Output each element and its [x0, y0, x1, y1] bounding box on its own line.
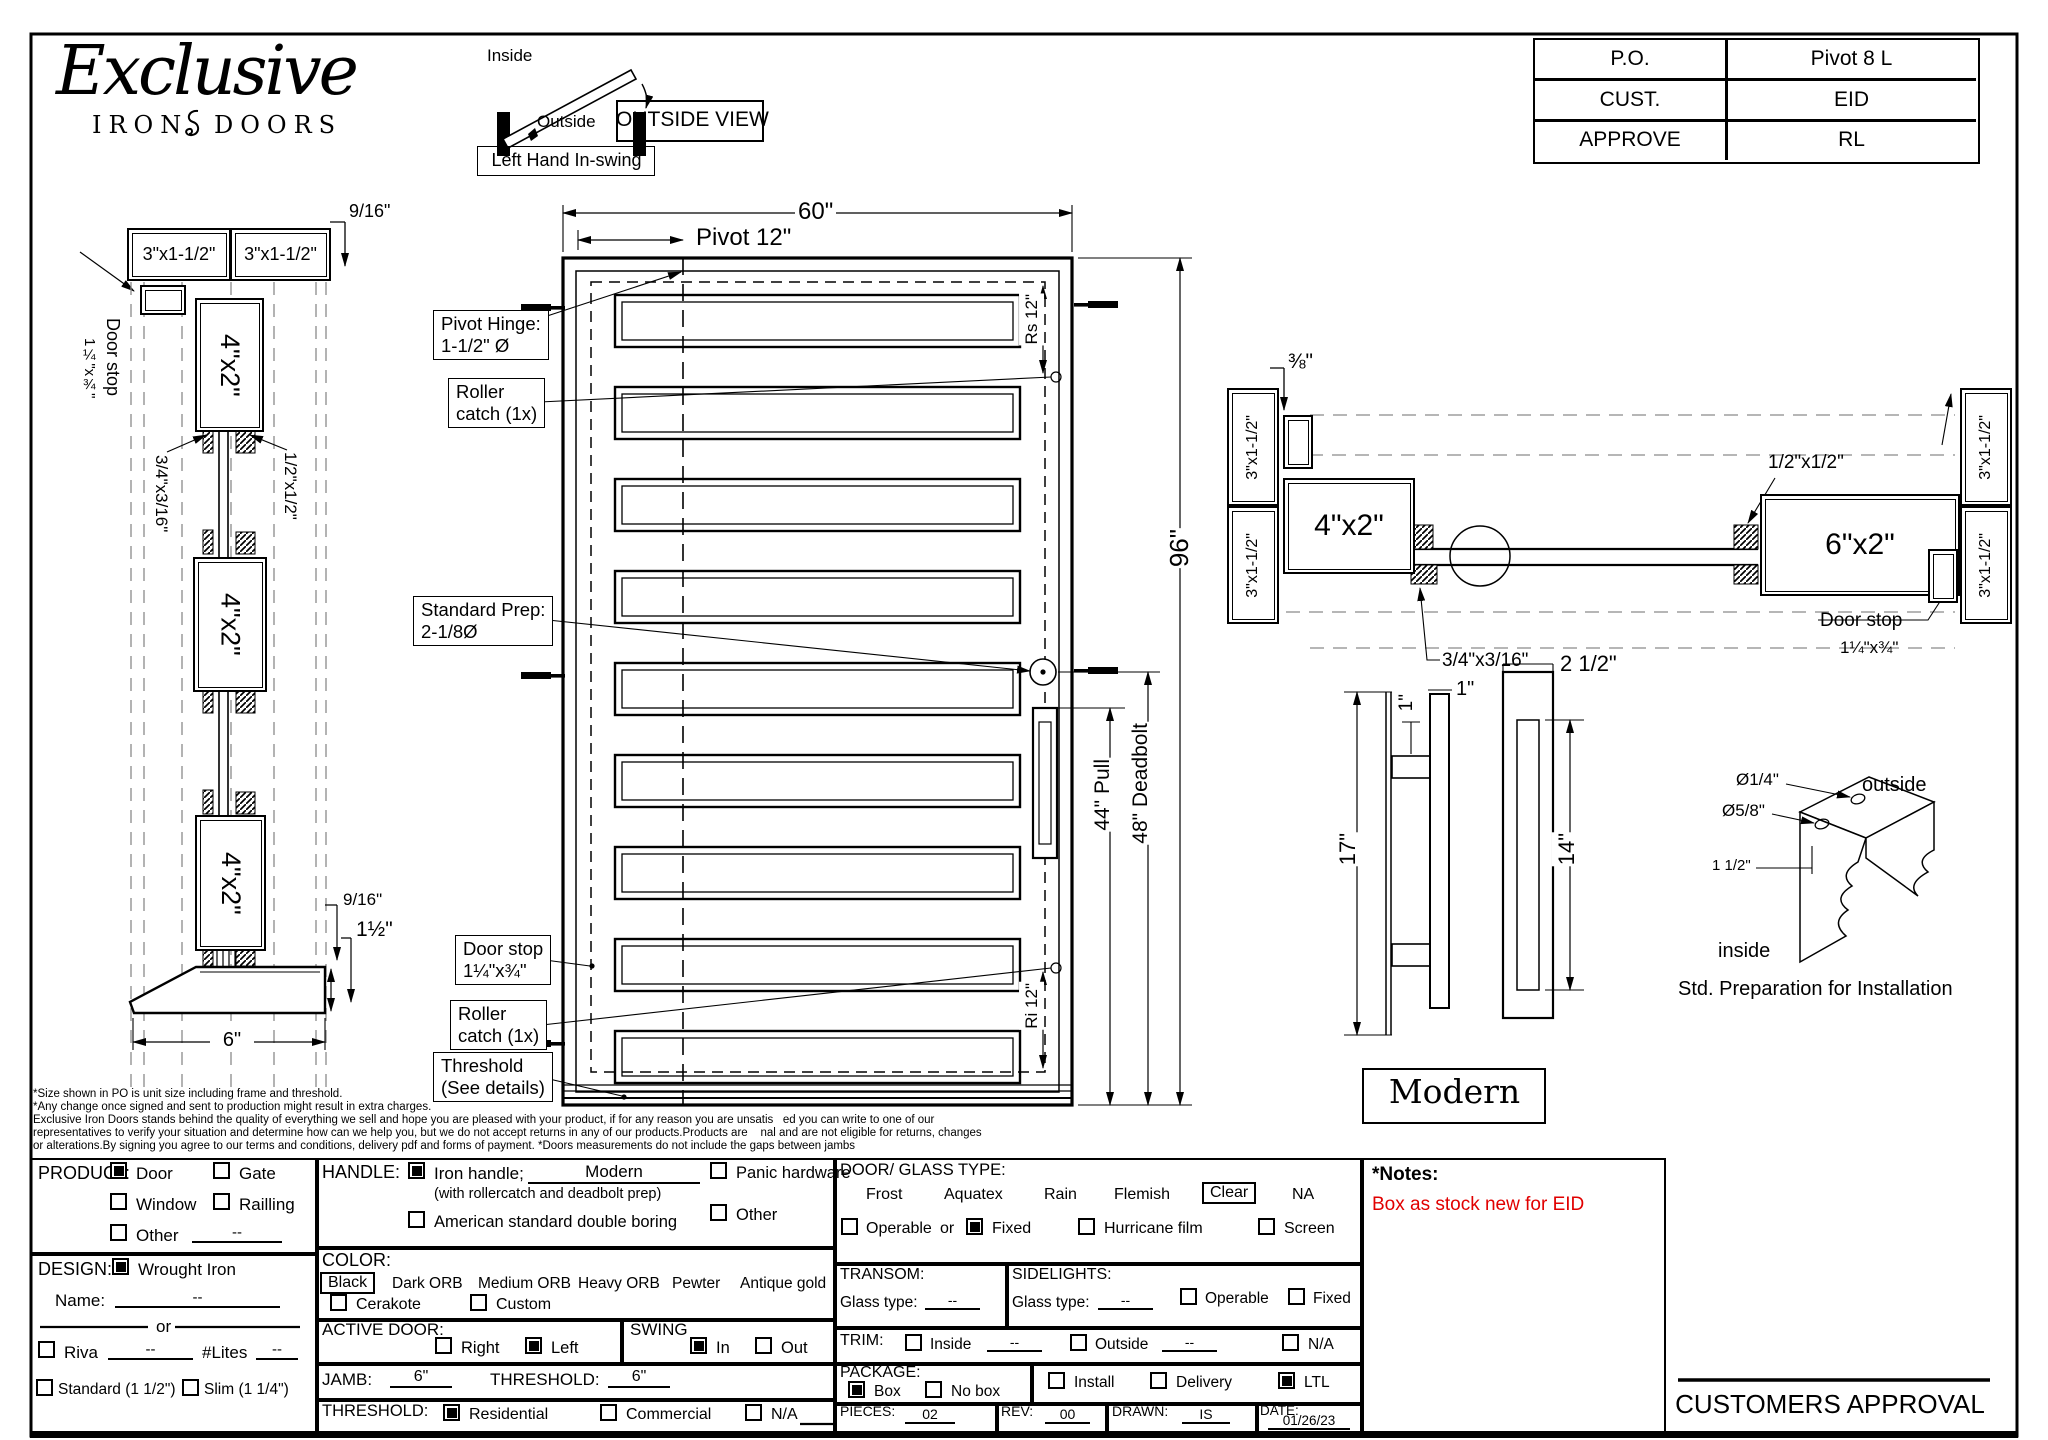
design-wrought-label: Wrought Iron — [138, 1260, 236, 1279]
threshold-residential-checkbox[interactable] — [443, 1404, 460, 1421]
package-ltl-checkbox[interactable] — [1278, 1372, 1295, 1389]
customers-approval-label: CUSTOMERS APPROVAL — [1662, 1390, 1998, 1419]
trim-na-checkbox[interactable] — [1282, 1334, 1299, 1351]
left-jamb-box-2: 3"x1-1/2" — [230, 228, 331, 281]
company-logo-script: Exclusive — [56, 34, 356, 110]
door-pull-handle — [1033, 708, 1057, 858]
door-dim-deadbolt: 48" Deadbolt — [1126, 722, 1156, 845]
left-dim-916-top: 9/16" — [349, 201, 390, 221]
jamb-value[interactable]: 6" — [390, 1368, 452, 1388]
door-dim-rs12: Rs 12" — [1019, 293, 1044, 345]
rev-label: REV: — [1001, 1404, 1033, 1420]
right-jamb-box-3: 3"x1-1/2" — [1960, 388, 2012, 506]
company-logo-sub-doors: DOORS — [214, 112, 342, 139]
title-po-key: P.O. — [1535, 47, 1725, 71]
install-inside-label: inside — [1718, 940, 1770, 962]
package-delivery-label: Delivery — [1176, 1374, 1232, 1391]
threshold-na-label: N/A — [771, 1406, 798, 1424]
door-dim-width: 60" — [795, 198, 836, 227]
threshold-dim-label: THRESHOLD: — [490, 1370, 600, 1389]
design-slim-checkbox[interactable] — [182, 1379, 199, 1396]
active-door-label: ACTIVE DOOR: — [322, 1320, 444, 1339]
callout-threshold: Threshold(See details) — [433, 1052, 553, 1102]
product-railing-checkbox[interactable] — [213, 1193, 230, 1210]
product-door-label: Door — [136, 1164, 173, 1183]
left-door-stop-label: Door stop — [103, 318, 123, 396]
handle-iron-checkbox[interactable] — [408, 1162, 425, 1179]
design-lites-label: #Lites — [202, 1343, 247, 1362]
handle-panic-checkbox[interactable] — [710, 1162, 727, 1179]
design-name-value[interactable]: -- — [115, 1289, 280, 1308]
design-label: DESIGN: — [38, 1259, 112, 1279]
disclaimer-line-4: representatives to verify your situation… — [33, 1127, 982, 1140]
left-dim-916-bottom: 9/16" — [343, 890, 382, 909]
glass-frost[interactable]: Frost — [866, 1186, 902, 1204]
threshold-residential-label: Residential — [469, 1406, 548, 1424]
title-approve-key: APPROVE — [1535, 128, 1725, 152]
sidelights-fixed-checkbox[interactable] — [1288, 1288, 1305, 1305]
swing-outside-label: Outside — [537, 112, 596, 131]
door-dim-pull: 44" Pull — [1088, 758, 1118, 832]
glass-operable-label: Operable — [866, 1220, 932, 1238]
handle-iron-label: Iron handle; — [434, 1164, 524, 1183]
bottom-rule — [30, 1431, 2018, 1438]
handle-dim-14: 14" — [1552, 832, 1583, 866]
trim-label: TRIM: — [840, 1332, 884, 1350]
design-riva-label: Riva — [64, 1343, 98, 1362]
jamb-label: JAMB: — [322, 1370, 372, 1389]
color-selected[interactable]: Black — [320, 1272, 375, 1294]
title-po-value: Pivot 8 L — [1727, 47, 1976, 71]
swing-in-label: In — [716, 1339, 730, 1357]
product-gate-label: Gate — [239, 1164, 276, 1183]
threshold-na-checkbox[interactable] — [745, 1404, 762, 1421]
active-right-checkbox[interactable] — [435, 1337, 452, 1354]
color-pewter[interactable]: Pewter — [672, 1275, 720, 1292]
install-dia-58: Ø5/8" — [1722, 801, 1765, 820]
swing-form-label: SWING — [630, 1320, 688, 1339]
handle-dim-17: 17" — [1333, 832, 1364, 866]
drawing-sheet: { "company": {"script":"Exclusive","sub1… — [0, 0, 2048, 1440]
notes-label: *Notes: — [1372, 1164, 1439, 1185]
color-label: COLOR: — [322, 1250, 391, 1270]
handle-dim-1b: 1" — [1456, 678, 1474, 700]
callout-roller-catch-top: Rollercatch (1x) — [448, 378, 545, 428]
install-dim-112: 1 1/2" — [1712, 858, 1751, 875]
pieces-value[interactable]: 02 — [905, 1406, 955, 1424]
trim-inside-label: Inside — [930, 1336, 971, 1353]
glass-hurricane-label: Hurricane film — [1104, 1220, 1203, 1238]
title-block-row-line — [1533, 78, 1976, 81]
threshold-commercial-label: Commercial — [626, 1406, 711, 1424]
design-riva-value[interactable]: -- — [108, 1341, 193, 1360]
glass-fixed-checkbox[interactable] — [966, 1218, 983, 1235]
glass-fixed-label: Fixed — [992, 1220, 1031, 1238]
glass-or-label: or — [940, 1220, 954, 1238]
transom-glass-label: Glass type: — [840, 1294, 918, 1311]
sidelights-glass-label: Glass type: — [1012, 1294, 1090, 1311]
product-door-checkbox[interactable] — [110, 1162, 127, 1179]
left-dim-6: 6" — [210, 1028, 254, 1052]
date-value[interactable]: 01/26/23 — [1268, 1413, 1350, 1430]
product-other-label: Other — [136, 1226, 179, 1245]
product-railing-label: Railling — [239, 1195, 295, 1214]
active-right-label: Right — [461, 1339, 500, 1357]
install-dia-14: Ø1/4" — [1736, 770, 1779, 789]
left-tube-box-3: 4"x2" — [195, 815, 266, 951]
door-dim-height: 96" — [1162, 528, 1197, 568]
product-gate-checkbox[interactable] — [213, 1162, 230, 1179]
install-caption: Std. Preparation for Installation — [1678, 978, 1953, 1000]
package-install-label: Install — [1074, 1374, 1115, 1391]
trim-inside-value[interactable]: -- — [987, 1334, 1042, 1352]
product-window-checkbox[interactable] — [110, 1193, 127, 1210]
color-custom-label: Custom — [496, 1296, 551, 1314]
design-standard-label: Standard (1 1/2") — [58, 1381, 176, 1398]
disclaimer-line-1: *Size shown in PO is unit size including… — [33, 1088, 342, 1101]
install-detail-lines — [1756, 777, 1934, 962]
package-box-checkbox[interactable] — [848, 1381, 865, 1398]
left-label-12x12: 1/2"x1/2" — [281, 452, 300, 520]
pivot-circle — [1450, 526, 1510, 586]
callout-door-stop: Door stop1¼"x¾" — [455, 935, 551, 985]
title-cust-value: EID — [1727, 88, 1976, 112]
right-door-stop-label: Door stop — [1820, 610, 1902, 631]
glass-label: DOOR/ GLASS TYPE: — [840, 1161, 1006, 1179]
title-block-row-line — [1533, 119, 1976, 122]
design-or-label: or — [153, 1316, 174, 1337]
trim-na-label: N/A — [1308, 1336, 1334, 1353]
install-outside-label: outside — [1862, 774, 1927, 796]
threshold-label: THRESHOLD: — [322, 1402, 428, 1420]
right-dim-38: ⅜" — [1288, 350, 1313, 374]
view-label: OUTSIDE VIEW — [616, 108, 764, 132]
color-cerakote-checkbox[interactable] — [330, 1294, 347, 1311]
package-box-label: Box — [874, 1383, 901, 1400]
right-jamb-box-2: 3"x1-1/2" — [1227, 506, 1279, 624]
color-custom-checkbox[interactable] — [470, 1294, 487, 1311]
left-door-stop-size: 1¼"x¾" — [80, 338, 97, 399]
drawn-label: DRAWN: — [1112, 1404, 1168, 1420]
logo-scroll-icon — [180, 108, 206, 144]
transom-label: TRANSOM: — [840, 1266, 924, 1284]
door-dim-ri12: Ri 12" — [1019, 982, 1044, 1030]
glass-screen-checkbox[interactable] — [1258, 1218, 1275, 1235]
left-tube-box-2: 4"x2" — [193, 557, 267, 692]
glass-rain[interactable]: Rain — [1044, 1186, 1077, 1204]
design-slim-label: Slim (1 1/4") — [204, 1381, 289, 1398]
swing-inside-label: Inside — [487, 46, 532, 65]
package-nobox-checkbox[interactable] — [925, 1381, 942, 1398]
active-left-label: Left — [551, 1339, 579, 1357]
hinge-pins — [521, 301, 1118, 1047]
package-ltl-label: LTL — [1304, 1374, 1330, 1391]
swing-out-checkbox[interactable] — [755, 1337, 772, 1354]
product-window-label: Window — [136, 1195, 196, 1214]
product-other-value[interactable]: -- — [192, 1224, 282, 1243]
right-jamb-box-4: 3"x1-1/2" — [1960, 506, 2012, 624]
threshold-profile — [130, 967, 325, 1013]
color-antique-gold[interactable]: Antique gold — [740, 1275, 826, 1292]
sidelights-fixed-label: Fixed — [1313, 1290, 1351, 1307]
right-door-stop-size: 1¼"x¾" — [1840, 638, 1898, 657]
color-heavy-orb[interactable]: Heavy ORB — [578, 1275, 660, 1292]
disclaimer-line-5: or alterations.By signing you agree to o… — [33, 1140, 855, 1153]
sidelights-glass-value[interactable]: -- — [1098, 1292, 1153, 1310]
design-riva-checkbox[interactable] — [38, 1341, 55, 1358]
handle-iron-value[interactable]: Modern — [528, 1162, 700, 1184]
title-cust-key: CUST. — [1535, 88, 1725, 112]
handle-american-checkbox[interactable] — [408, 1211, 425, 1228]
callout-standard-prep: Standard Prep:2-1/8Ø — [413, 596, 553, 646]
right-jamb-box-1: 3"x1-1/2" — [1227, 388, 1279, 506]
right-tube4-box: 4"x2" — [1283, 478, 1415, 574]
company-logo-sub-iron: IRON — [92, 112, 188, 139]
color-cerakote-label: Cerakote — [356, 1296, 421, 1314]
handle-dim-1a: 1" — [1396, 694, 1417, 711]
swing-in-checkbox[interactable] — [690, 1337, 707, 1354]
design-wrought-checkbox[interactable] — [112, 1258, 129, 1275]
swing-out-label: Out — [781, 1339, 808, 1357]
right-door-stop-box-right — [1928, 549, 1958, 603]
product-other-checkbox[interactable] — [110, 1224, 127, 1241]
glass-selected[interactable]: Clear — [1202, 1182, 1256, 1204]
sidelights-label: SIDELIGHTS: — [1012, 1266, 1112, 1284]
threshold-commercial-checkbox[interactable] — [600, 1404, 617, 1421]
right-label-12x12: 1/2"x1/2" — [1768, 452, 1844, 473]
design-name-label: Name: — [55, 1291, 105, 1310]
trim-outside-checkbox[interactable] — [1070, 1334, 1087, 1351]
glass-hurricane-checkbox[interactable] — [1078, 1218, 1095, 1235]
pieces-label: PIECES: — [840, 1404, 895, 1420]
threshold-dim-value[interactable]: 6" — [608, 1368, 670, 1388]
design-lites-value[interactable]: -- — [256, 1341, 298, 1360]
design-standard-checkbox[interactable] — [36, 1379, 53, 1396]
active-left-checkbox[interactable] — [525, 1337, 542, 1354]
title-approve-value: RL — [1727, 128, 1976, 152]
trim-outside-value[interactable]: -- — [1162, 1334, 1217, 1352]
glass-aquatex[interactable]: Aquatex — [944, 1186, 1003, 1204]
left-dim-1half: 1½" — [356, 918, 393, 942]
door-frame — [563, 258, 1072, 1105]
left-tube-box-1: 4"x2" — [195, 298, 264, 432]
handle-style-name: Modern — [1362, 1074, 1547, 1111]
handle-other-label: Other — [736, 1206, 777, 1224]
sidelights-operable-checkbox[interactable] — [1180, 1288, 1197, 1305]
rev-value[interactable]: 00 — [1045, 1406, 1090, 1424]
door-elevation-lines — [521, 205, 1192, 1105]
handle-panic-label: Panic hardware — [736, 1164, 851, 1182]
sidelights-operable-label: Operable — [1205, 1290, 1269, 1307]
glass-operable-checkbox[interactable] — [841, 1218, 858, 1235]
glass-na[interactable]: NA — [1292, 1186, 1314, 1204]
right-door-stop-box-left — [1283, 415, 1313, 469]
handle-other-checkbox[interactable] — [710, 1204, 727, 1221]
drawn-value[interactable]: IS — [1182, 1406, 1230, 1424]
package-install-checkbox[interactable] — [1048, 1372, 1065, 1389]
door-slats — [615, 295, 1020, 1083]
handle-dim-25: 2 1/2" — [1560, 652, 1617, 677]
handle-note: (with rollercatch and deadbolt prep) — [434, 1186, 661, 1202]
handle-detail-lines — [1344, 664, 1584, 1035]
left-jamb-box-1: 3"x1-1/2" — [127, 228, 231, 281]
package-label: PACKAGE: — [840, 1364, 921, 1382]
color-dark-orb[interactable]: Dark ORB — [392, 1275, 463, 1292]
left-label-34x316: 3/4"x3/16" — [152, 455, 171, 532]
disclaimer-line-2: *Any change once signed and sent to prod… — [33, 1101, 431, 1114]
swing-caption: Left Hand In-swing — [477, 150, 656, 170]
callout-pivot-hinge: Pivot Hinge:1-1/2" Ø — [433, 310, 549, 360]
trim-inside-checkbox[interactable] — [905, 1334, 922, 1351]
handle-american-label: American standard double boring — [434, 1213, 677, 1231]
color-medium-orb[interactable]: Medium ORB — [478, 1275, 571, 1292]
door-dim-pivot: Pivot 12" — [693, 224, 794, 253]
transom-glass-value[interactable]: -- — [925, 1292, 980, 1310]
disclaimer-line-3: Exclusive Iron Doors stands behind the q… — [33, 1114, 934, 1127]
right-label-34x316: 3/4"x3/16" — [1442, 650, 1528, 671]
trim-outside-label: Outside — [1095, 1336, 1148, 1353]
package-delivery-checkbox[interactable] — [1150, 1372, 1167, 1389]
package-nobox-label: No box — [951, 1383, 1000, 1400]
glass-flemish[interactable]: Flemish — [1114, 1186, 1170, 1204]
left-door-stop-box — [140, 285, 186, 315]
notes-value: Box as stock new for EID — [1372, 1194, 1584, 1215]
handle-label: HANDLE: — [322, 1162, 400, 1182]
callout-roller-catch-bottom: Rollercatch (1x) — [450, 1000, 547, 1050]
glass-screen-label: Screen — [1284, 1220, 1335, 1238]
